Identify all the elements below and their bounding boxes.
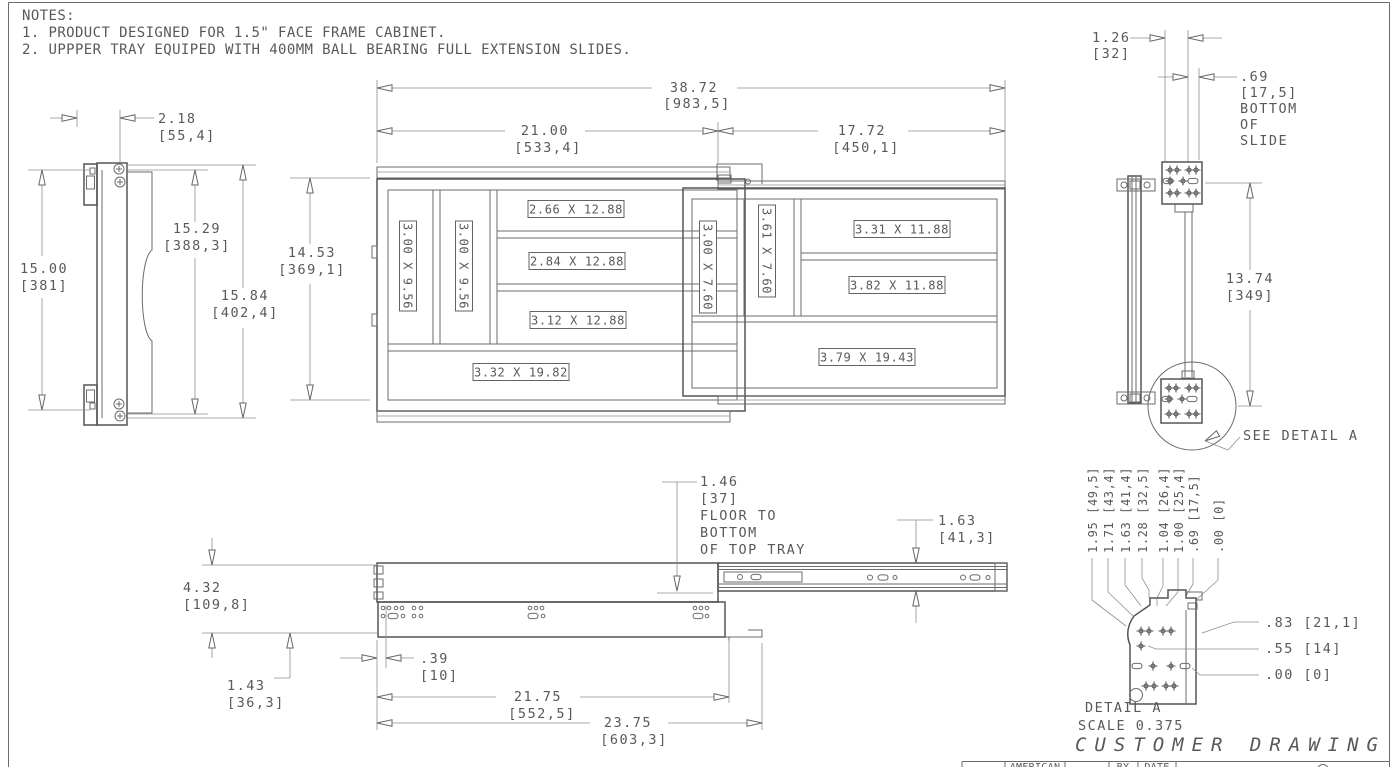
dim-text-mm: [10] — [420, 668, 459, 684]
dim-text-mm: [369,1] — [278, 262, 345, 278]
drawing-canvas: NOTES: 1. PRODUCT DESIGNED FOR 1.5" FACE… — [0, 0, 1395, 767]
compartment-label: 3.00 X 9.56 — [457, 223, 471, 309]
dim-text: .00 [0] — [1265, 667, 1332, 683]
dim-text-mm: [37] — [700, 491, 739, 507]
dim-1-46-floor: 1.46 [37] FLOOR TO BOTTOM OF TOP TRAY — [662, 474, 806, 591]
dim-text: 15.00 — [20, 261, 68, 277]
title-block-date-label: DATE — [1144, 762, 1169, 767]
dim-15-00: 15.00 [381] — [20, 170, 90, 410]
note-line-2: 2. UPPPER TRAY EQUIPED WITH 400MM BALL B… — [22, 42, 631, 58]
title-block-by-label: BY — [1117, 762, 1130, 767]
dim-text-mm: [109,8] — [183, 597, 250, 613]
front-geometry — [374, 563, 1007, 641]
dim-note: BOTTOM — [1240, 101, 1298, 117]
notes-heading: NOTES: — [22, 8, 75, 24]
compartment-label: 3.79 X 19.43 — [820, 351, 914, 365]
see-detail-a-callout: SEE DETAIL A — [1203, 428, 1358, 450]
dim-text-mm: [349] — [1226, 288, 1274, 304]
dim-text-mm: [552,5] — [508, 706, 575, 722]
left-side-view: 2.18 [55,4] 15.00 [381] 15.29 [388,3] 15… — [20, 110, 279, 425]
customer-drawing-page: NOTES: 1. PRODUCT DESIGNED FOR 1.5" FACE… — [0, 0, 1395, 767]
dim-0-39: .39 [10] — [340, 605, 459, 684]
title-block: CUSTOMER DRAWING AMERICAN BY DATE — [962, 734, 1390, 767]
dim-note: BOTTOM — [700, 525, 758, 541]
dim-17-72: 17.72 [450,1] — [718, 123, 1005, 156]
dim-1-43: 1.43 [36,3] — [227, 633, 293, 711]
dim-text: 38.72 — [670, 80, 718, 96]
dim-2-18: 2.18 [55,4] — [50, 110, 216, 163]
dim-15-84: 15.84 [402,4] — [128, 165, 279, 418]
right-side-view: 1.26 [32] .69 [17,5] BOTTOM OF SLIDE — [1092, 30, 1359, 450]
dim-note: OF TOP TRAY — [700, 542, 806, 558]
dim-text-rotated: 1.04 [26,4] — [1157, 467, 1171, 553]
detail-a-vertical-dims: 1.95 [49,5] 1.71 [43,4] 1.63 [41,4] 1.28… — [1086, 467, 1226, 626]
dim-text: .83 [21,1] — [1265, 615, 1361, 631]
compartment-label: 3.00 X 7.60 — [701, 224, 715, 310]
dim-text: .69 — [1240, 69, 1269, 85]
title-block-company: AMERICAN — [1010, 762, 1061, 767]
compartment-label: 3.61 X 7.60 — [760, 208, 774, 294]
dim-text: 21.75 — [514, 689, 562, 705]
compartment-label: 3.32 X 19.82 — [474, 366, 568, 380]
compartment-label: 2.66 X 12.88 — [529, 203, 623, 217]
dim-13-74: 13.74 [349] — [1205, 183, 1274, 406]
dim-text-rotated: 1.00 [25,4] — [1172, 467, 1186, 553]
dim-text-mm: [55,4] — [158, 128, 216, 144]
upper-tray-plan: 3.00 X 7.60 3.61 X 7.60 3.31 X 11.88 3.8… — [683, 181, 1005, 404]
dim-4-32: 4.32 [109,8] — [183, 538, 377, 658]
compartment-label: 2.84 X 12.88 — [530, 255, 624, 269]
dim-text-rotated: 1.28 [32,5] — [1136, 467, 1150, 553]
dim-text: 21.00 — [521, 123, 569, 139]
dim-text-mm: [603,3] — [600, 732, 667, 748]
dim-1-63: 1.63 [41,3] — [897, 513, 996, 623]
dim-text-mm: [41,3] — [938, 530, 996, 546]
dim-text-mm: [32] — [1092, 46, 1131, 62]
dim-0-69: .69 [17,5] BOTTOM OF SLIDE — [1158, 68, 1298, 160]
dim-text: 1.43 — [227, 678, 266, 694]
dim-note: OF — [1240, 117, 1259, 133]
dim-text-mm: [381] — [20, 278, 68, 294]
dim-text: 13.74 — [1226, 271, 1274, 287]
detail-a-geometry — [1128, 590, 1202, 704]
callout-text: SEE DETAIL A — [1243, 428, 1359, 444]
dim-text: .39 — [420, 651, 449, 667]
detail-a-scale: SCALE 0.375 — [1078, 718, 1184, 734]
dim-text: 1.26 — [1092, 30, 1131, 46]
drawing-frame — [9, 3, 1390, 767]
plan-view: 38.72 [983,5] 21.00 [533,4] 17.72 [450,1… — [278, 80, 1005, 422]
customer-drawing-label: CUSTOMER DRAWING — [1075, 734, 1386, 756]
dim-text: .55 [14] — [1265, 641, 1342, 657]
dim-text: 23.75 — [604, 715, 652, 731]
dim-14-53: 14.53 [369,1] — [278, 178, 370, 400]
right-side-geometry — [1117, 162, 1236, 450]
dim-text-mm: [36,3] — [227, 695, 285, 711]
dim-text-mm: [450,1] — [832, 140, 899, 156]
compartment-label: 3.82 X 11.88 — [850, 279, 944, 293]
detail-a-horizontal-dims: .83 [21,1] .55 [14] .00 [0] — [1148, 615, 1361, 683]
dim-text-rotated: .00 [0] — [1212, 498, 1226, 553]
dim-text-mm: [402,4] — [211, 305, 278, 321]
dim-text-rotated: 1.95 [49,5] — [1086, 467, 1100, 553]
dim-21-00: 21.00 [533,4] — [377, 122, 718, 163]
dim-text: 4.32 — [183, 580, 222, 596]
dim-text-mm: [388,3] — [163, 238, 230, 254]
compartment-label: 3.31 X 11.88 — [855, 223, 949, 237]
detail-a-title: DETAIL A — [1085, 700, 1162, 716]
dim-text-rotated: 1.71 [43,4] — [1102, 467, 1116, 553]
dim-note: FLOOR TO — [700, 508, 777, 524]
dim-text-mm: [17,5] — [1240, 85, 1298, 101]
left-side-geometry — [84, 163, 152, 425]
note-line-1: 1. PRODUCT DESIGNED FOR 1.5" FACE FRAME … — [22, 25, 446, 41]
dim-text: 15.84 — [221, 288, 269, 304]
notes-block: NOTES: 1. PRODUCT DESIGNED FOR 1.5" FACE… — [22, 8, 631, 58]
compartment-label: 3.12 X 12.88 — [531, 314, 625, 328]
dim-text-rotated: .69 [17,5] — [1187, 475, 1201, 553]
dim-text: 15.29 — [173, 221, 221, 237]
dim-text: 14.53 — [288, 245, 336, 261]
dim-text: 1.46 — [700, 474, 739, 490]
dim-text: 2.18 — [158, 111, 197, 127]
dim-1-26: 1.26 [32] — [1092, 30, 1222, 162]
compartment-label: 3.00 X 9.56 — [401, 223, 415, 309]
dim-text-mm: [533,4] — [514, 140, 581, 156]
dim-15-29: 15.29 [388,3] — [128, 170, 231, 414]
dim-text-mm: [983,5] — [663, 96, 730, 112]
dim-text: 1.63 — [938, 513, 977, 529]
dim-38-72: 38.72 [983,5] — [377, 80, 1005, 186]
dim-text-rotated: 1.63 [41,4] — [1119, 467, 1133, 553]
dim-text: 17.72 — [838, 123, 886, 139]
dim-note: SLIDE — [1240, 133, 1288, 149]
detail-a-view: 1.95 [49,5] 1.71 [43,4] 1.63 [41,4] 1.28… — [1078, 467, 1361, 734]
front-view: 1.46 [37] FLOOR TO BOTTOM OF TOP TRAY 1.… — [183, 474, 1007, 748]
